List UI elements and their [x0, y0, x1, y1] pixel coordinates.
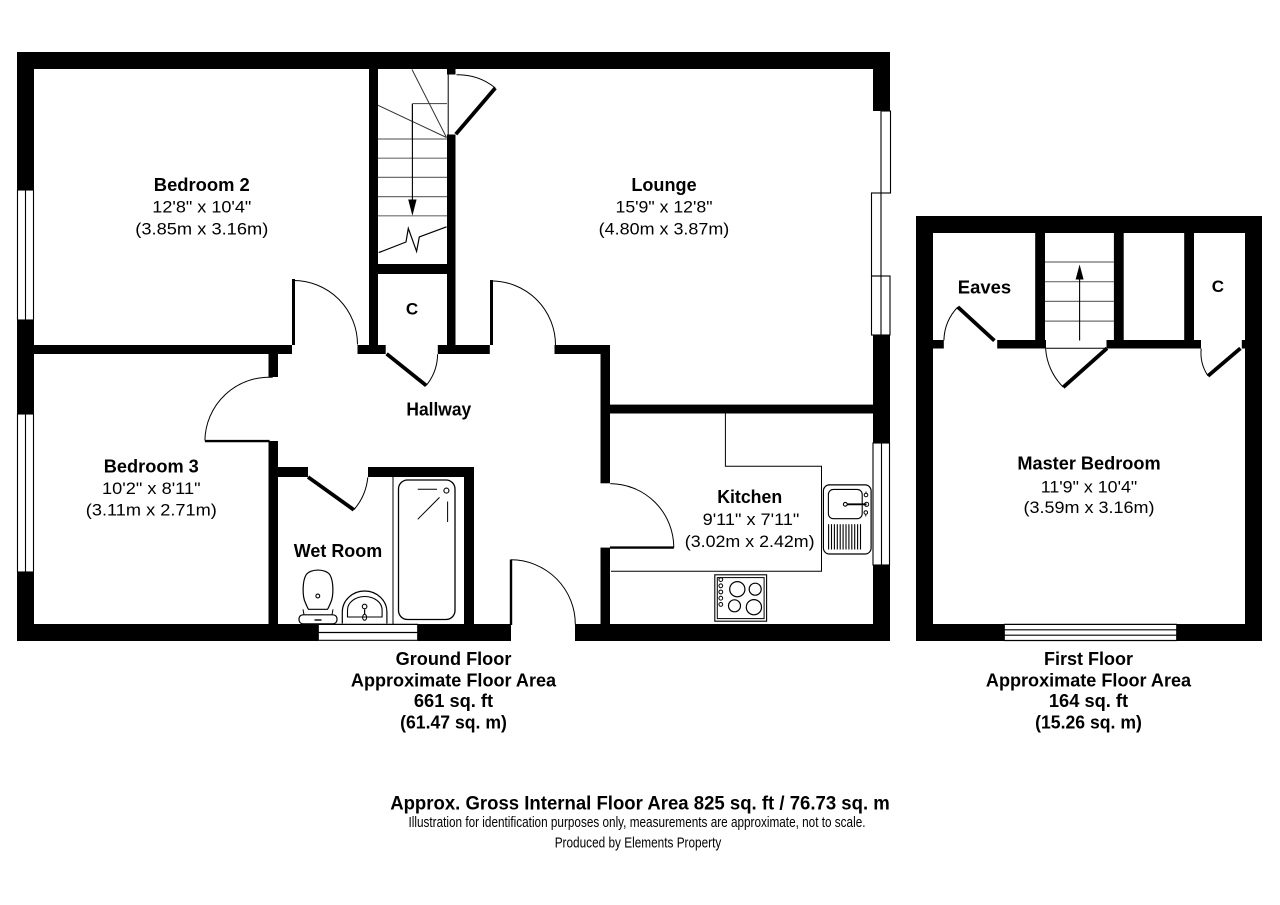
svg-text:First Floor: First Floor [1044, 649, 1133, 669]
svg-text:Hallway: Hallway [406, 400, 471, 420]
svg-text:(15.26 sq. m): (15.26 sq. m) [1035, 713, 1142, 733]
svg-text:661 sq. ft: 661 sq. ft [414, 691, 493, 711]
svg-text:(4.80m x 3.87m): (4.80m x 3.87m) [599, 220, 730, 239]
svg-text:11'9" x 10'4": 11'9" x 10'4" [1041, 478, 1138, 497]
svg-text:Bedroom 2: Bedroom 2 [154, 175, 250, 195]
svg-text:15'9" x 12'8": 15'9" x 12'8" [616, 198, 713, 217]
svg-text:C: C [1212, 277, 1224, 296]
svg-text:12'8" x 10'4": 12'8" x 10'4" [152, 198, 251, 217]
svg-text:(3.02m x 2.42m): (3.02m x 2.42m) [685, 532, 815, 551]
svg-text:Produced by Elements Property: Produced by Elements Property [555, 834, 722, 851]
svg-text:Master Bedroom: Master Bedroom [1017, 454, 1160, 474]
svg-text:Approximate Floor Area: Approximate Floor Area [986, 670, 1192, 690]
svg-text:Bedroom 3: Bedroom 3 [104, 457, 199, 477]
svg-text:Illustration for identificatio: Illustration for identification purposes… [409, 814, 866, 831]
svg-text:Eaves: Eaves [958, 278, 1011, 298]
svg-text:Lounge: Lounge [631, 175, 696, 195]
svg-text:(61.47 sq. m): (61.47 sq. m) [400, 713, 507, 733]
svg-text:10'2" x 8'11": 10'2" x 8'11" [102, 479, 201, 498]
svg-text:Wet Room: Wet Room [294, 541, 382, 561]
svg-text:164 sq. ft: 164 sq. ft [1049, 691, 1128, 711]
svg-text:C: C [406, 300, 418, 319]
svg-text:(3.11m x 2.71m): (3.11m x 2.71m) [86, 501, 217, 520]
svg-text:Approximate Floor Area: Approximate Floor Area [351, 670, 557, 690]
svg-text:Approx. Gross Internal Floor A: Approx. Gross Internal Floor Area 825 sq… [390, 793, 890, 814]
svg-text:Kitchen: Kitchen [717, 487, 782, 507]
svg-text:9'11" x 7'11": 9'11" x 7'11" [703, 510, 800, 529]
svg-text:(3.59m x 3.16m): (3.59m x 3.16m) [1024, 498, 1155, 517]
svg-text:(3.85m x 3.16m): (3.85m x 3.16m) [135, 220, 268, 239]
svg-text:Ground Floor: Ground Floor [396, 649, 512, 669]
